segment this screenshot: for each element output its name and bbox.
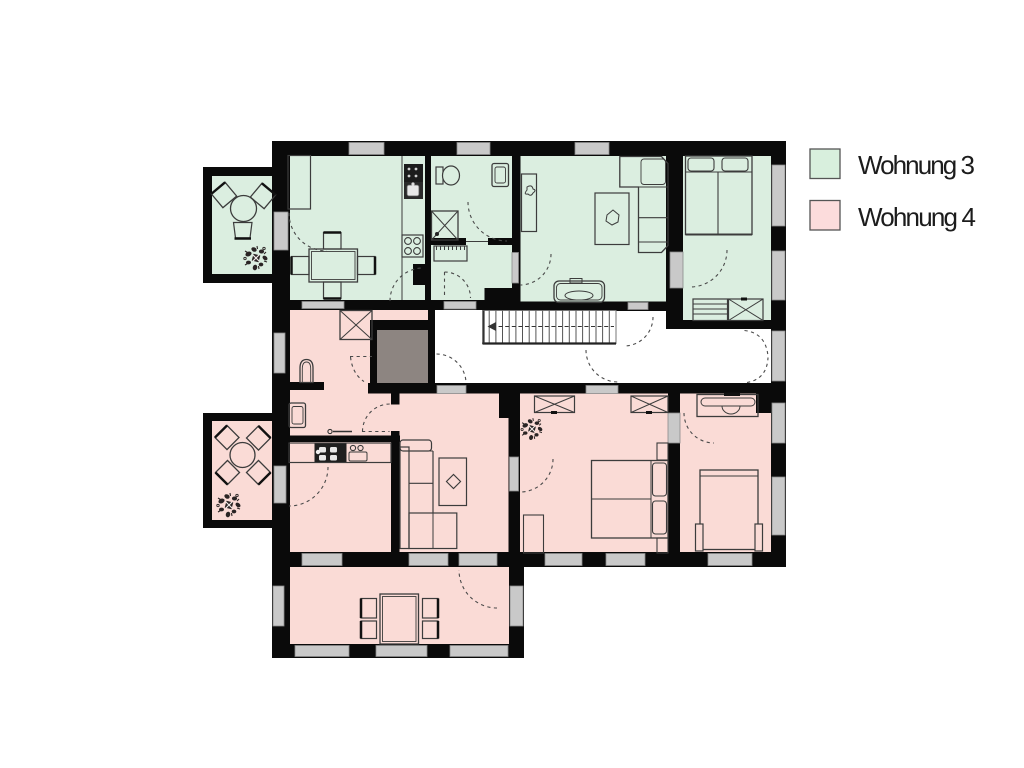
svg-text:Wohnung 4: Wohnung 4 (858, 202, 976, 232)
svg-text:Wohnung 3: Wohnung 3 (858, 150, 975, 180)
